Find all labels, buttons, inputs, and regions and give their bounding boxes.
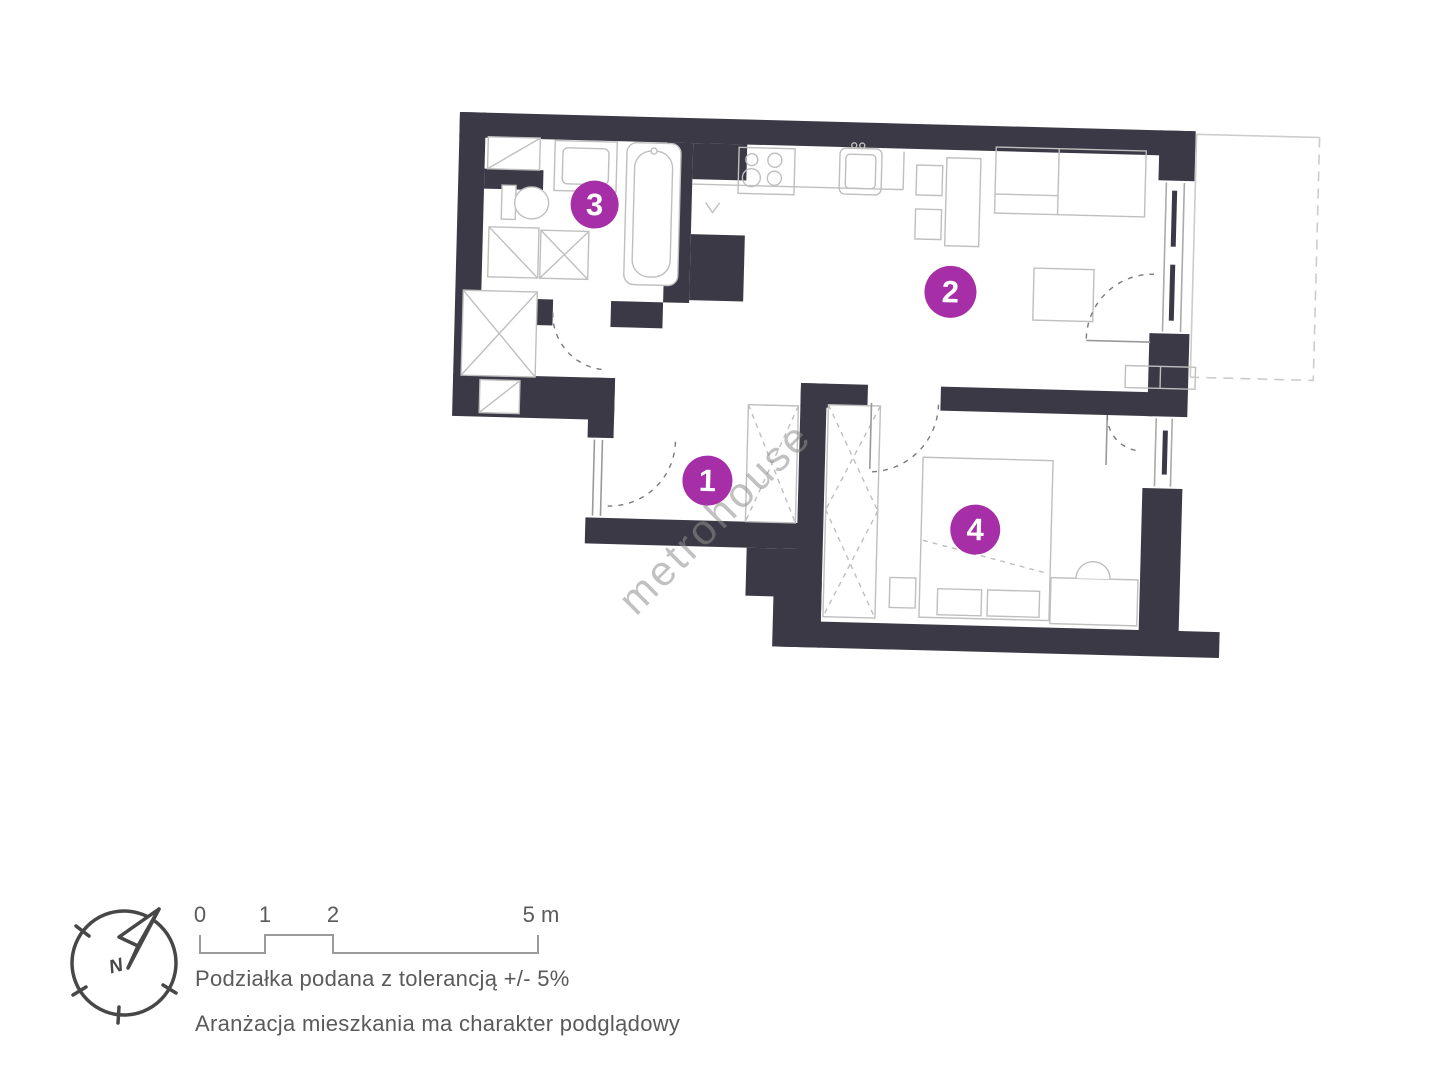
- wall-segment: [610, 301, 663, 328]
- room-marker-2: 2: [924, 265, 977, 318]
- balcony-door-glazing: [1169, 265, 1175, 321]
- sofa-divider: [995, 194, 1058, 196]
- fridge-mark: [705, 202, 719, 212]
- floor-plan-page: 1 2 3 4 metrohouse: [0, 0, 1437, 1080]
- balcony: [1190, 134, 1319, 380]
- balcony-door-leaf: [1086, 340, 1150, 342]
- legend: N 0 1 2 5 m Podziałka podana z tolerancj…: [72, 902, 680, 1036]
- compass-tick: [118, 1007, 119, 1023]
- sideboard-divider: [1160, 366, 1161, 388]
- chair: [915, 209, 942, 240]
- tolerance-note: Podziałka podana z tolerancją +/- 5%: [195, 966, 570, 991]
- pillow: [987, 590, 1040, 617]
- room-marker-label: 3: [586, 187, 604, 222]
- toilet-tank: [501, 185, 516, 219]
- wall-segment: [1138, 488, 1182, 649]
- wall-segment: [588, 377, 616, 438]
- bedroom-desk: [1050, 578, 1138, 626]
- stool: [1076, 561, 1110, 579]
- burner: [768, 153, 782, 167]
- floor-plan-svg: 1 2 3 4 metrohouse: [0, 0, 1437, 1080]
- pillow: [937, 589, 982, 616]
- wall-segment: [794, 383, 827, 634]
- scale-bar: 0 1 2 5 m: [194, 902, 559, 953]
- balcony-door-frame: [1162, 183, 1166, 332]
- entrance-door-leaf: [592, 440, 594, 516]
- burner: [746, 154, 758, 166]
- room-marker-label: 4: [966, 512, 985, 547]
- bedroom-window-glazing: [1162, 431, 1168, 475]
- entrance-door-arc: [608, 440, 676, 508]
- kitchen-sink-basin: [845, 154, 876, 189]
- sofa-divider: [1058, 149, 1060, 215]
- scale-label-1: 1: [259, 902, 271, 927]
- balcony-door-arc: [1086, 272, 1154, 340]
- room-marker-label: 2: [941, 274, 959, 309]
- wall-segment: [689, 234, 745, 301]
- nightstand: [889, 577, 916, 608]
- wall-segment: [1158, 130, 1195, 181]
- burner: [767, 171, 781, 185]
- wall-segment: [940, 387, 1153, 417]
- toilet-bowl: [514, 186, 549, 219]
- balcony-door-glazing: [1171, 191, 1177, 247]
- balcony-outline-solid: [1190, 134, 1319, 380]
- scale-label-5m: 5 m: [523, 902, 560, 927]
- bathtub-faucet: [651, 148, 657, 154]
- arrangement-note: Aranżacja mieszkania ma charakter podglą…: [195, 1011, 680, 1036]
- counter-end: [903, 152, 904, 190]
- scale-label-0: 0: [194, 902, 206, 927]
- compass-ring: [72, 911, 176, 1015]
- north-label: N: [107, 954, 127, 978]
- bedroom-window-frame: [1170, 419, 1172, 487]
- bathroom-door-arc: [551, 312, 608, 369]
- bedroom-wardrobe: [823, 405, 881, 618]
- bathtub-inner: [632, 151, 673, 278]
- scale-label-2: 2: [327, 902, 339, 927]
- bath-sink-basin: [562, 148, 609, 185]
- window-casement-leaf: [1106, 415, 1107, 465]
- wall-segment: [1147, 333, 1189, 417]
- compass-icon: N: [72, 909, 176, 1023]
- chair: [916, 165, 943, 196]
- window-casement-arc: [1106, 415, 1142, 451]
- dining-table: [945, 158, 981, 247]
- scale-bar-line: [200, 935, 538, 953]
- apartment-plan: 1 2 3 4: [446, 112, 1319, 660]
- coffee-table: [1033, 268, 1094, 322]
- balcony-door-frame: [1180, 183, 1184, 332]
- bedroom-window-frame: [1154, 418, 1156, 486]
- sofa: [995, 147, 1147, 217]
- balcony-outline-dashed: [1190, 134, 1319, 380]
- entrance-door-leaf: [600, 440, 602, 516]
